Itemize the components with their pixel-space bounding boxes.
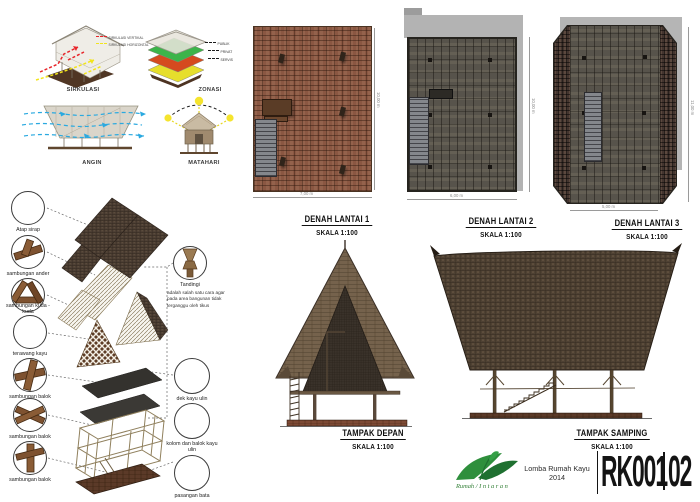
ladder — [290, 372, 299, 422]
sambungan-ander-swatch — [11, 235, 45, 269]
timber-frame — [76, 410, 164, 479]
caption-title: DENAH LANTAI 1 — [302, 214, 372, 226]
sheet-code-divider — [663, 452, 665, 490]
terawang-kayu-swatch — [13, 315, 47, 349]
sun-icon — [164, 114, 171, 121]
plan3-roof-band-left — [554, 26, 570, 203]
slash-divider: / — [476, 483, 478, 490]
dimension-text: 10,00 m — [376, 92, 381, 108]
dimension-line — [688, 27, 689, 202]
callout-label: sambungan kuda - kuda — [0, 303, 56, 316]
stair-plan3 — [584, 92, 602, 162]
dimension-text: 11,00 m — [690, 100, 695, 115]
floor-plan-1 — [253, 26, 372, 192]
front-elevation-caption: TAMPAK DEPAN SKALA 1:100 — [331, 423, 415, 451]
callout-label: sambungan ander — [0, 271, 56, 277]
dimension-line — [253, 197, 372, 198]
table-furniture — [429, 89, 453, 99]
wood-joint-icon — [14, 442, 46, 474]
angin-label: ANGIN — [47, 160, 137, 166]
dimension-line — [570, 210, 658, 211]
competition-name: Lomba Rumah Kayu — [520, 464, 594, 473]
pasangan-bata-swatch — [174, 455, 210, 491]
sun-icon — [195, 97, 203, 105]
caption-title: DENAH LANTAI 2 — [466, 216, 536, 228]
yellow-dash-swatch — [96, 43, 107, 44]
competition-title: Lomba Rumah Kayu 2014 — [520, 464, 594, 482]
sirkulasi-label: SIRKULASI — [38, 87, 128, 93]
dimension-line — [529, 37, 530, 192]
plan2-upper-deck — [404, 15, 523, 38]
dimension-text: 10,00 m — [531, 98, 536, 114]
sambungan-balok-swatch-1 — [13, 358, 47, 392]
studio-name: Rumah / Intaran — [456, 483, 509, 490]
caption-title: TAMPAK SAMPING — [574, 428, 650, 440]
sheet-number: 02 — [668, 452, 691, 492]
plan3-caption: DENAH LANTAI 3 SKALA 1:100 — [605, 213, 689, 241]
atap-sirap-swatch — [11, 191, 45, 225]
kolom-balok-swatch — [174, 403, 210, 439]
caption-scale: SKALA 1:100 — [295, 228, 379, 237]
floor-plan-3 — [554, 26, 676, 203]
competition-year: 2014 — [520, 473, 594, 482]
side-elevation-drawing — [430, 242, 682, 424]
plan1-caption: DENAH LANTAI 1 SKALA 1:100 — [295, 209, 379, 237]
front-elevation-drawing — [272, 240, 440, 430]
dimension-line — [374, 28, 375, 190]
callout-label: pasangan bata — [164, 493, 220, 499]
caption-scale: SKALA 1:100 — [605, 232, 689, 241]
rat-guard-icon — [174, 247, 206, 279]
callout-label: dek kayu ulin — [164, 396, 220, 402]
studio-name-right: Intaran — [479, 483, 509, 490]
zonasi-diagram — [138, 22, 210, 88]
wood-joint-icon — [12, 236, 44, 268]
bench-furniture — [262, 99, 292, 116]
dek-kayu-ulin-swatch — [174, 358, 210, 394]
callout-label: sambungan balok — [2, 477, 58, 483]
dimension-line — [407, 199, 517, 200]
wood-joint-icon — [14, 359, 46, 391]
studio-name-left: Rumah — [456, 483, 474, 490]
tandingi-swatch — [173, 246, 207, 280]
callout-label: Tandingi — [162, 282, 218, 288]
matahari-label: MATAHARI — [159, 160, 249, 166]
dimension-text: 6,00 m — [450, 193, 463, 198]
tandingi-description: adalah salah satu cara agar pada area ba… — [167, 290, 225, 309]
stair-plan2 — [409, 97, 429, 165]
floor-plan-3-outline — [553, 25, 677, 204]
callout-label: Atap sirap — [0, 227, 56, 233]
wood-joint-icon — [14, 399, 46, 431]
callout-label: terawang kayu — [2, 351, 58, 357]
presentation-board: SIRKULASI VERTIKAL SIRKULASI HORIZONTAL … — [0, 0, 700, 502]
caption-scale: SKALA 1:100 — [459, 230, 543, 239]
dash-icon — [208, 58, 219, 59]
plan2-caption: DENAH LANTAI 2 SKALA 1:100 — [459, 211, 543, 239]
sun-icon — [226, 114, 233, 121]
caption-title: TAMPAK DEPAN — [340, 428, 406, 440]
callout-label: sambungan balok — [2, 434, 58, 440]
sambungan-balok-swatch-2 — [13, 398, 47, 432]
caption-scale: SKALA 1:100 — [331, 442, 415, 451]
stair-plan1 — [255, 119, 277, 177]
dimension-text: 5,00 m — [602, 204, 615, 209]
stair-side — [504, 383, 554, 410]
sheet-code: RK001 — [601, 452, 667, 492]
caption-title: DENAH LANTAI 3 — [612, 218, 682, 230]
zonasi-legend-servis: SERVIS — [208, 48, 233, 66]
callout-label: kolom dan balok kayu ulin — [164, 441, 220, 454]
legend-label: SERVIS — [221, 58, 233, 62]
rumah-intaran-leaf-logo — [450, 448, 522, 486]
floor-plan-2 — [407, 37, 517, 192]
angin-diagram — [20, 96, 156, 162]
plan3-roof-band-right — [660, 26, 676, 203]
dimension-text: 7,00 m — [300, 191, 313, 196]
sheet-code-block: RK001 02 — [601, 448, 699, 494]
matahari-diagram — [158, 92, 240, 164]
titleblock-divider — [597, 451, 598, 494]
sambungan-balok-swatch-3 — [13, 441, 47, 475]
